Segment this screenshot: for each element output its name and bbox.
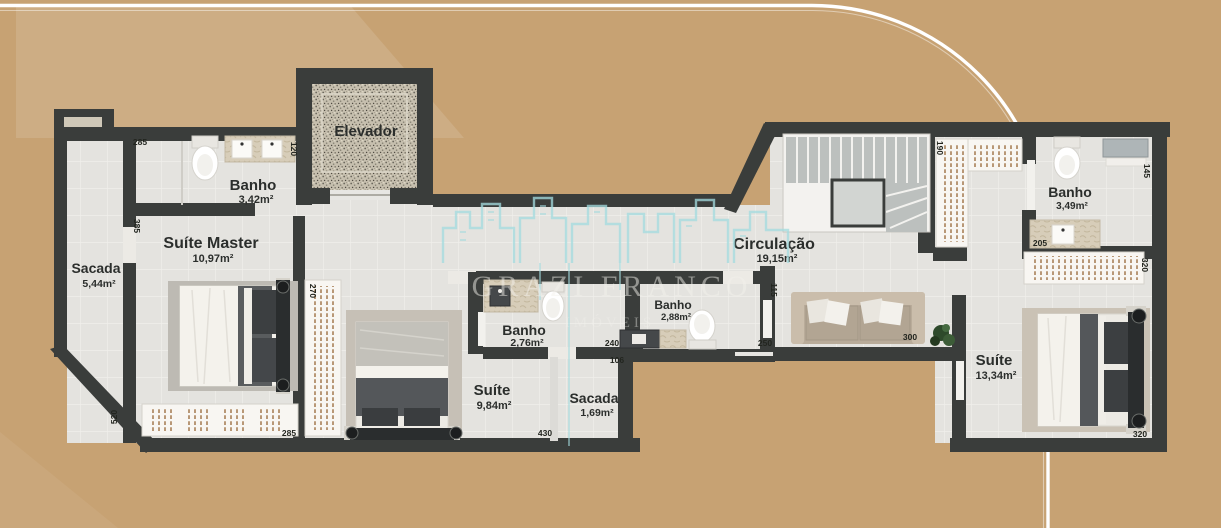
room-area-suite-master: 10,97m² [193, 253, 234, 265]
floorplan-page: Sacada 5,44m² Banho 3,42m² Suíte Master … [0, 0, 1221, 528]
room-label-suite-984: Suíte [474, 382, 511, 399]
room-area-sacada-1: 5,44m² [82, 278, 116, 290]
room-area-suite-984: 9,84m² [477, 400, 512, 412]
dim-240: 240 [605, 338, 619, 348]
floorplan-svg: Sacada 5,44m² Banho 3,42m² Suíte Master … [0, 0, 1221, 528]
dim-430: 430 [538, 428, 552, 438]
dim-520: 520 [109, 410, 119, 424]
room-area-banho-288: 2,88m² [661, 312, 691, 323]
watermark-sub: IMÓVEIS [565, 314, 656, 331]
dim-270: 270 [308, 284, 318, 298]
dim-300: 300 [903, 332, 917, 342]
room-area-banho-342: 3,42m² [239, 194, 274, 206]
room-area-circulacao: 19,15m² [757, 253, 798, 265]
watermark-brand: GRAZI FRANCO [472, 270, 753, 303]
dim-190: 190 [935, 141, 945, 155]
bed-suite-master [168, 278, 298, 394]
room-area-suite-1334: 13,34m² [976, 370, 1017, 382]
room-label-circulacao: Circulação [733, 236, 815, 253]
dim-285-top: 285 [133, 137, 147, 147]
dim-106: 106 [610, 355, 624, 365]
dim-285-bottom: 285 [282, 428, 296, 438]
room-label-banho-349: Banho [1048, 184, 1092, 200]
room-area-banho-276: 2,76m² [510, 337, 544, 349]
dim-145: 145 [1142, 164, 1152, 178]
staircase [783, 134, 930, 232]
room-label-sacada-2: Sacada [569, 390, 618, 406]
dim-250: 250 [758, 338, 772, 348]
dim-205: 205 [1033, 238, 1047, 248]
dim-320-bottom: 320 [1133, 429, 1147, 439]
room-area-banho-349: 3,49m² [1056, 201, 1088, 212]
dim-115: 115 [769, 283, 779, 297]
dim-320-side: 320 [1140, 258, 1150, 272]
bed-suite-1334 [1022, 306, 1150, 434]
room-label-banho-276: Banho [502, 322, 546, 338]
room-label-suite-1334: Suíte [976, 352, 1013, 369]
stair-railing [832, 180, 884, 226]
dim-120: 120 [289, 142, 299, 156]
room-label-elevador: Elevador [334, 123, 398, 140]
room-label-sacada-1: Sacada [71, 260, 120, 276]
toilet [689, 310, 716, 349]
bed-suite-984 [344, 310, 462, 440]
toilet [192, 136, 218, 180]
room-area-sacada-2: 1,69m² [580, 407, 614, 419]
room-label-banho-342: Banho [230, 177, 277, 194]
dim-385: 385 [132, 219, 142, 233]
room-label-suite-master: Suíte Master [163, 235, 258, 252]
shower-box [1103, 139, 1148, 157]
toilet [1054, 137, 1080, 179]
